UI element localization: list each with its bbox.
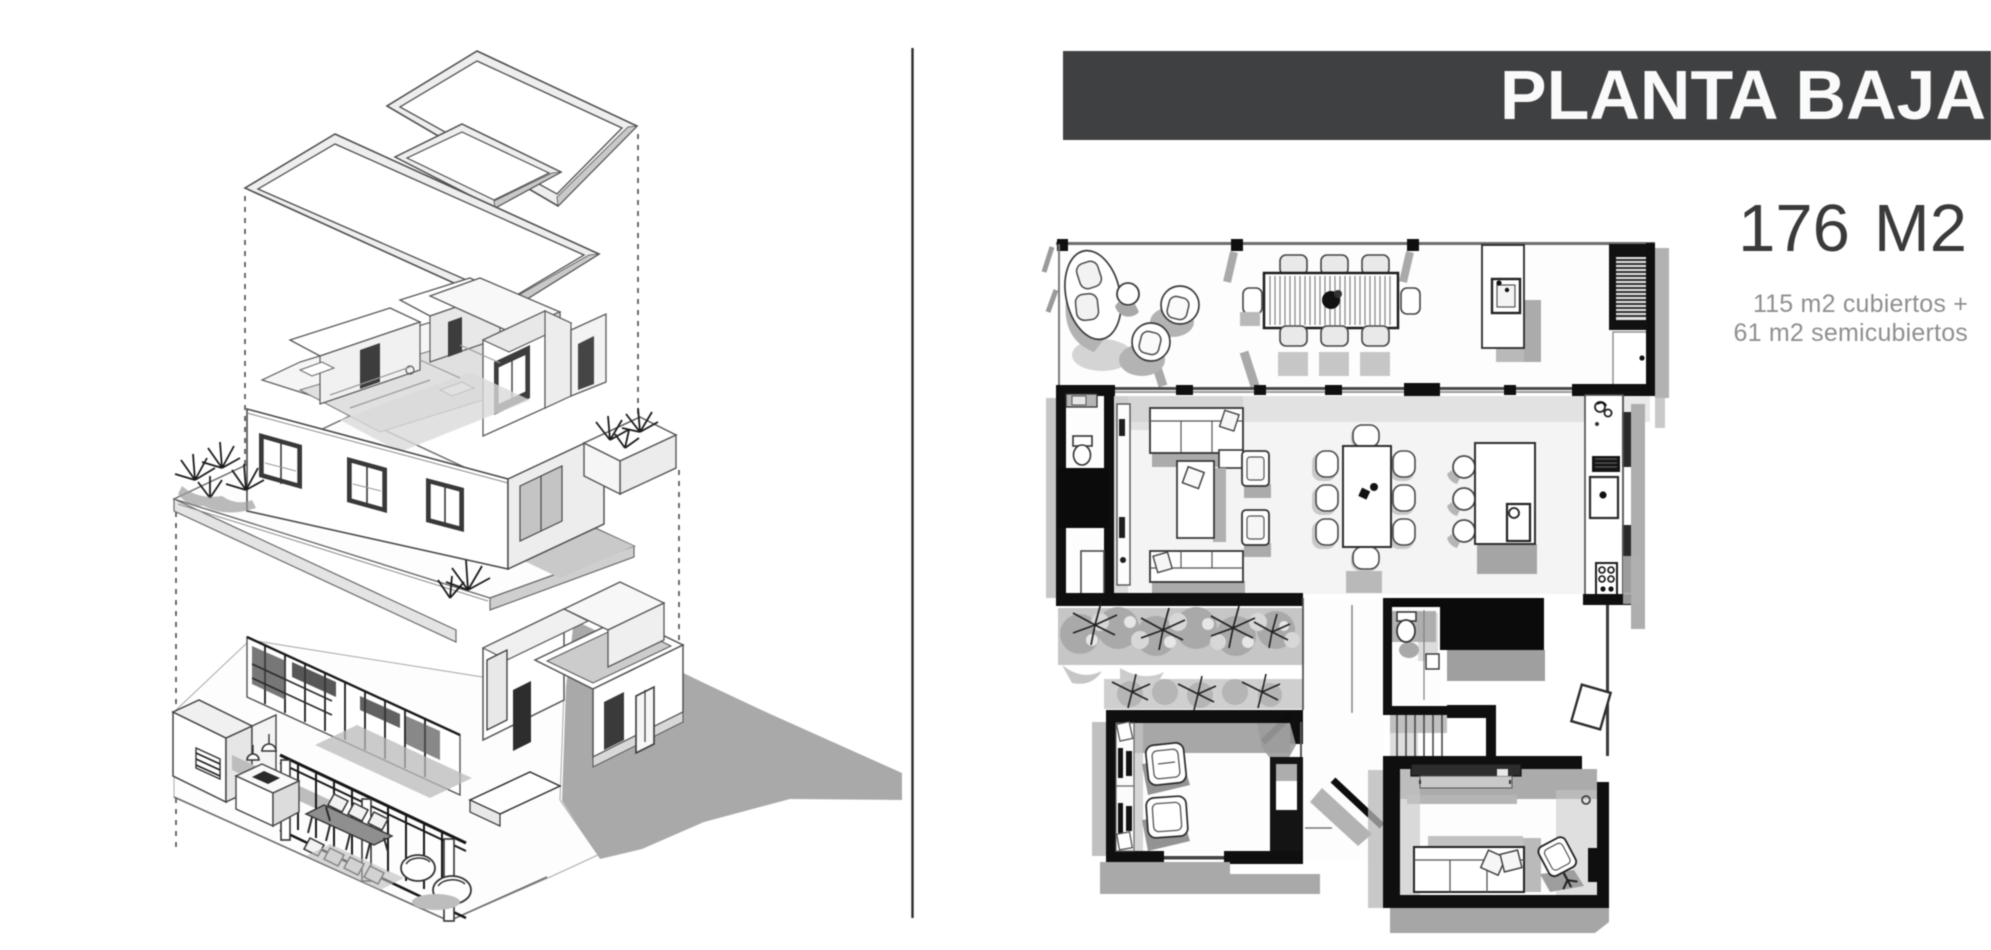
- svg-text:61 m2 semicubiertos: 61 m2 semicubiertos: [1734, 319, 1968, 347]
- svg-text:115 m2 cubiertos +: 115 m2 cubiertos +: [1753, 290, 1968, 318]
- svg-text:176M2: 176M2: [1738, 191, 1967, 266]
- svg-text:PLANTA BAJA: PLANTA BAJA: [1500, 56, 1986, 134]
